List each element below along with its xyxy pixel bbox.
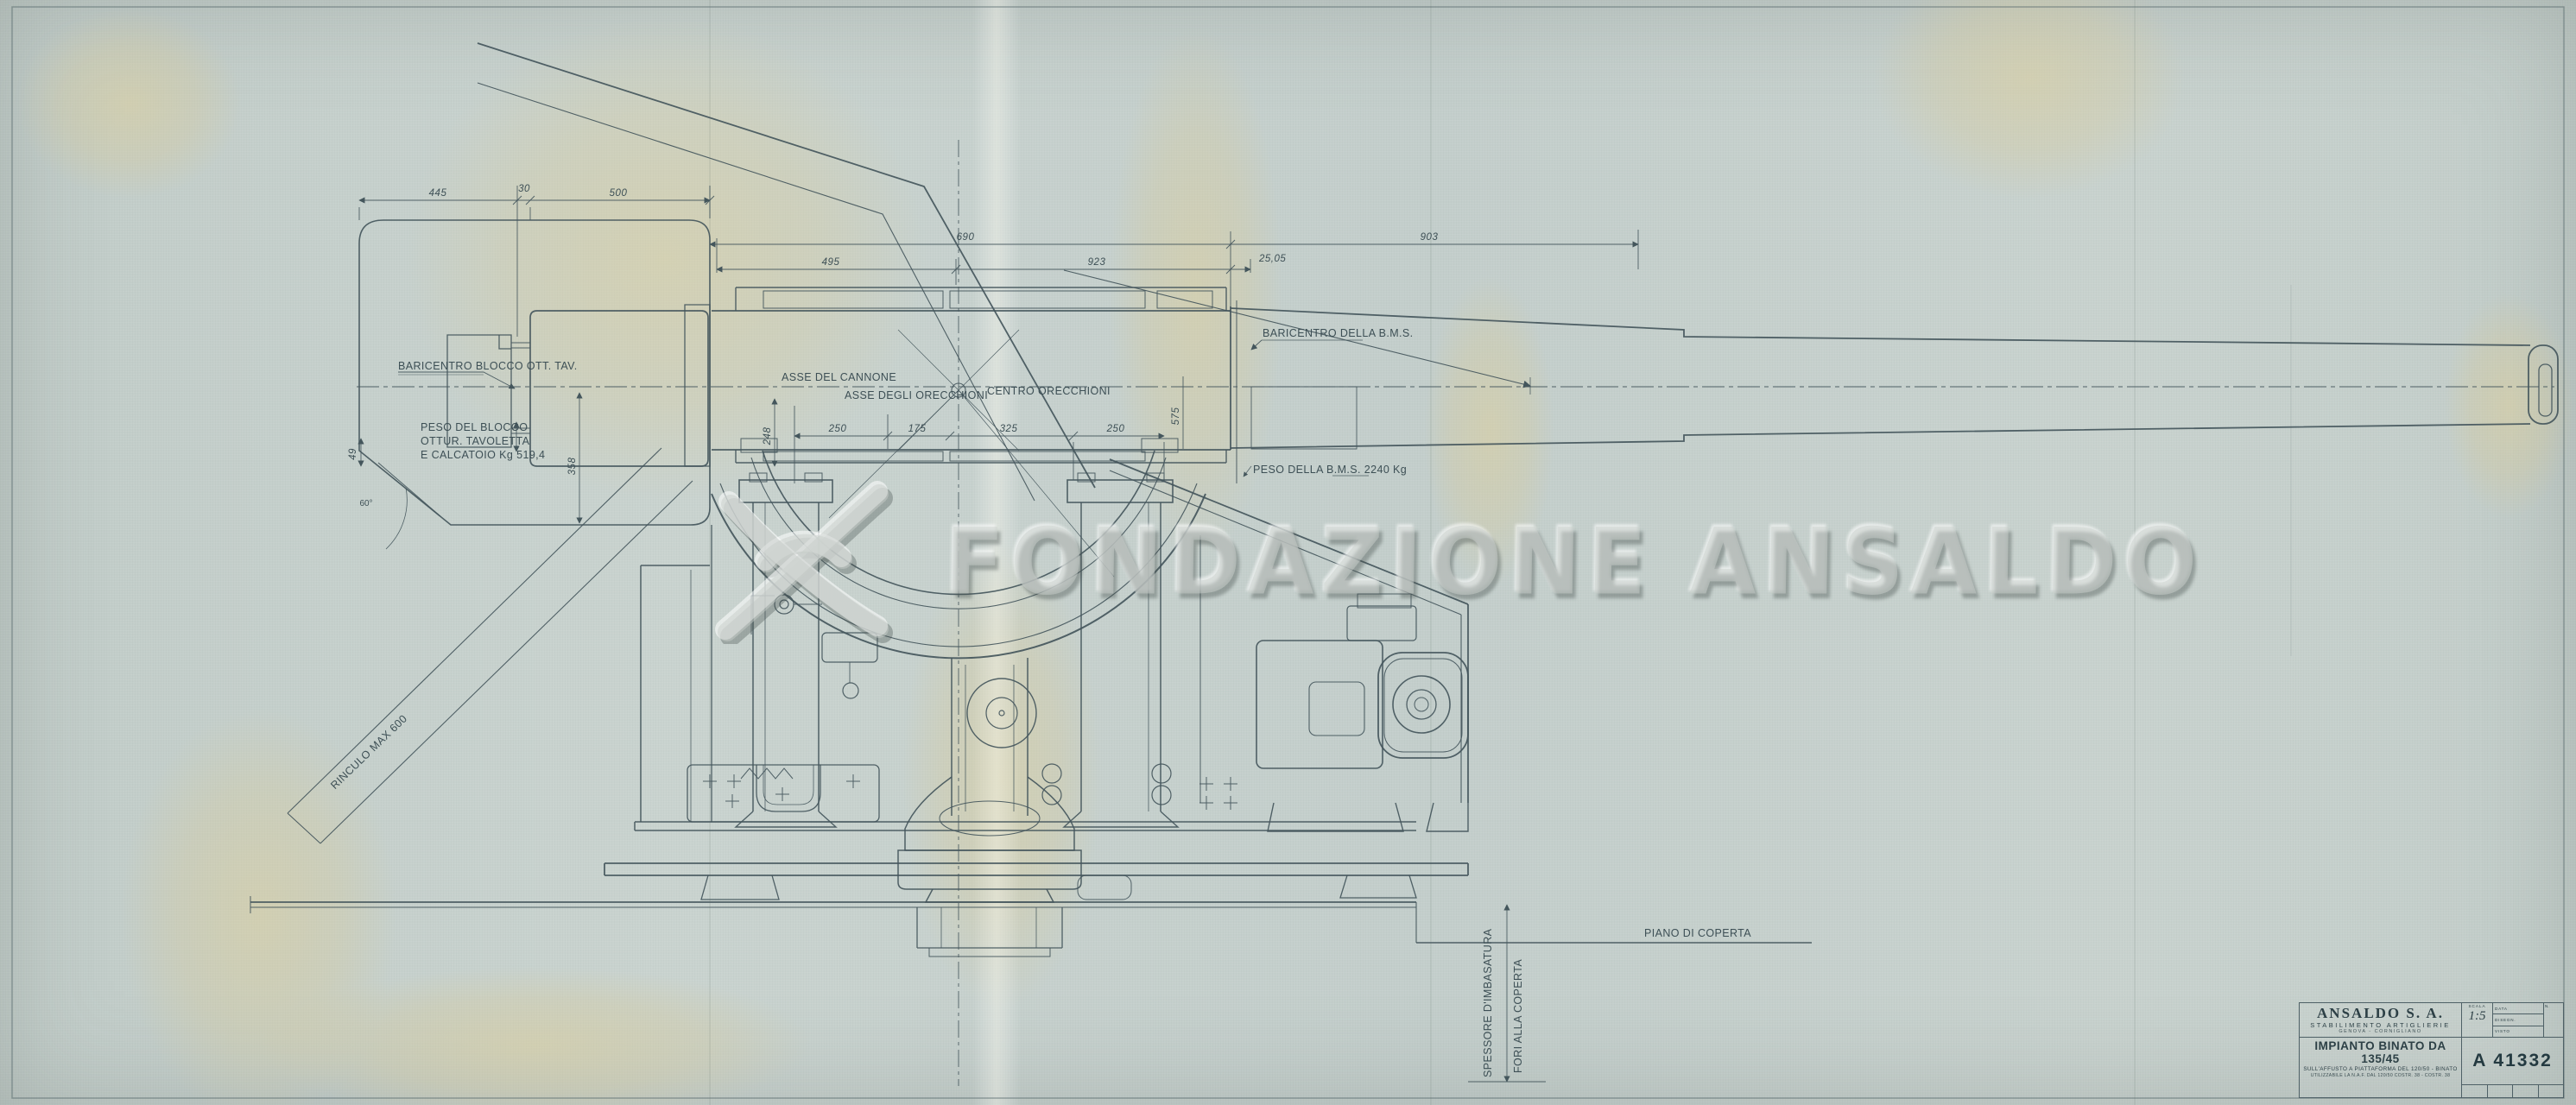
drawing-subtitle-2: UTILIZZABILE LA N.A.F. DAL 120/50 COSTR.… [2301, 1073, 2459, 1079]
dim-2505: 25,05 [1258, 254, 1286, 264]
dim-923: 923 [1088, 257, 1106, 268]
training-motor-housing [1378, 653, 1468, 758]
blueprint-sheet: 445 30 500 690 903 495 923 25,05 250 175… [0, 0, 2576, 1105]
company-department: STABILIMENTO ARTIGLIERIE [2301, 1021, 2459, 1029]
drawing-subtitle-1: SULL'AFFUSTO A PIATTAFORMA DEL 120/50 - … [2301, 1066, 2459, 1073]
label-baricentro-bms: BARICENTRO DELLA B.M.S. [1263, 327, 1414, 339]
dim-690: 690 [957, 232, 975, 243]
dim-445: 445 [429, 188, 447, 199]
dim-175: 175 [908, 424, 927, 434]
scale-label: SCALA [2462, 1004, 2492, 1008]
label-peso-blocco-2: OTTUR. TAVOLETTA [421, 435, 530, 447]
dim-575: 575 [1171, 407, 1181, 426]
dim-30: 30 [518, 184, 530, 194]
label-peso-blocco-1: PESO DEL BLOCCO [421, 421, 528, 433]
revision-cells-row [2462, 1084, 2563, 1097]
title-block-right: SCALA 1:5 DATA DISEGN. VISTO N. A 41332 [2462, 1003, 2563, 1097]
dim-325: 325 [1000, 424, 1018, 434]
revision-cell [2539, 1085, 2564, 1097]
scale-and-fields-row: SCALA 1:5 DATA DISEGN. VISTO N. [2462, 1003, 2563, 1038]
technical-drawing: 445 30 500 690 903 495 923 25,05 250 175… [0, 0, 2576, 1105]
paper-stains [17, 0, 2573, 1105]
label-peso-bms: PESO DELLA B.M.S. 2240 Kg [1253, 464, 1407, 476]
revision-cell [2488, 1085, 2514, 1097]
label-baricentro-blocco: BARICENTRO BLOCCO OTT. TAV. [398, 360, 578, 372]
dim-358: 358 [567, 458, 578, 476]
label-asse-cannone: ASSE DEL CANNONE [782, 371, 896, 383]
dim-250a: 250 [828, 424, 847, 434]
revision-cell [2462, 1085, 2488, 1097]
field-n: N. [2544, 1003, 2563, 1037]
label-fori-coperta: FORI ALLA COPERTA [1512, 959, 1524, 1073]
dim-495: 495 [822, 257, 840, 268]
label-centro-orecchioni: CENTRO ORECCHIONI [987, 385, 1111, 397]
drawing-title: IMPIANTO BINATO DA 135/45 [2301, 1039, 2459, 1065]
revision-cell [2513, 1085, 2539, 1097]
field-visto: VISTO [2493, 1026, 2543, 1037]
company-name: ANSALDO S. A. [2301, 1006, 2459, 1021]
title-block-left: ANSALDO S. A. STABILIMENTO ARTIGLIERIE G… [2300, 1003, 2462, 1097]
label-spessore-imbasatura: SPESSORE D'IMBASATURA [1482, 928, 1494, 1077]
dim-250b: 250 [1106, 424, 1125, 434]
dim-903: 903 [1421, 232, 1439, 243]
dim-248: 248 [763, 427, 773, 446]
scale-cell: SCALA 1:5 [2462, 1003, 2493, 1037]
training-rack-teeth [741, 768, 793, 779]
company-section: ANSALDO S. A. STABILIMENTO ARTIGLIERIE G… [2300, 1003, 2461, 1038]
drawing-number: A 41332 [2462, 1038, 2563, 1084]
label-asse-orecchioni: ASSE DEGLI ORECCHIONI [845, 389, 988, 401]
dim-49: 49 [348, 448, 358, 460]
title-block: ANSALDO S. A. STABILIMENTO ARTIGLIERIE G… [2299, 1002, 2564, 1098]
label-piano-coperta: PIANO DI COPERTA [1644, 927, 1751, 939]
drawing-title-section: IMPIANTO BINATO DA 135/45 SULL'AFFUSTO A… [2300, 1038, 2461, 1097]
company-location: GENOVA - CORNIGLIANO [2301, 1029, 2459, 1035]
scale-value: 1:5 [2469, 1009, 2486, 1023]
dim-500: 500 [610, 188, 628, 199]
signature-fields: DATA DISEGN. VISTO [2493, 1003, 2544, 1037]
field-disegn: DISEGN. [2493, 1014, 2543, 1026]
label-peso-blocco-3: E CALCATOIO Kg 519,4 [421, 449, 545, 461]
dim-60deg: 60° [359, 499, 372, 508]
field-data: DATA [2493, 1003, 2543, 1014]
